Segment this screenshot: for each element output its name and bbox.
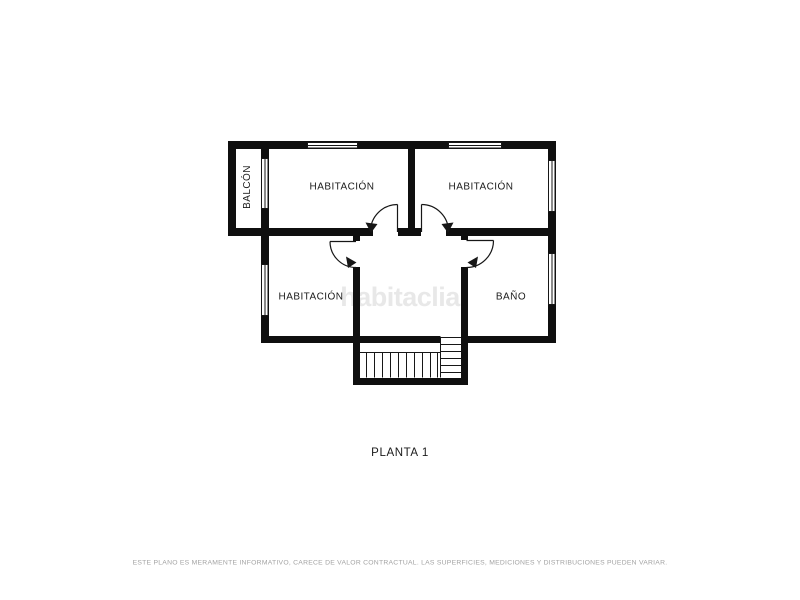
floor-plan-page: habitaclia <box>0 0 800 600</box>
floor-plan-drawing: habitaclia <box>0 0 800 600</box>
room-label-bedroom-mid-left: HABITACIÓN <box>279 290 344 303</box>
room-label-bedroom-top-left: HABITACIÓN <box>310 180 375 193</box>
room-label-balcony: BALCÓN <box>240 165 253 209</box>
window-bedroom-top-left <box>308 143 358 149</box>
wall-bathroom-bottom <box>461 336 556 343</box>
door-bathroom <box>467 241 494 269</box>
disclaimer-text: ESTE PLANO ES MERAMENTE INFORMATIVO, CAR… <box>133 560 668 567</box>
wall-middle-left-segment <box>228 228 373 236</box>
stair-treads <box>360 353 440 378</box>
door-bedroom-top-right <box>422 205 454 234</box>
door-bedroom-top-left <box>366 205 398 234</box>
wall-bottom-left <box>261 336 440 343</box>
room-label-bedroom-top-right: HABITACIÓN <box>449 180 514 193</box>
wall-hall-right-lower <box>461 267 468 385</box>
wall-hall-left-upper <box>353 228 360 241</box>
stair-landing-steps <box>441 337 462 378</box>
wall-hall-right-upper <box>461 228 468 240</box>
window-bathroom-side <box>549 254 556 305</box>
door-bedroom-mid-left <box>330 242 357 269</box>
wall-balcony-left <box>228 141 236 236</box>
floor-title: PLANTA 1 <box>371 447 429 459</box>
wall-middle-center-segment <box>398 228 421 236</box>
room-label-bathroom: BAÑO <box>496 290 526 303</box>
wall-hall-left-lower <box>353 267 360 385</box>
window-bedroom-mid-left-side <box>262 265 269 316</box>
wall-bedrooms-divider <box>408 141 415 236</box>
window-bedroom-top-right-side <box>549 161 556 212</box>
window-bedroom-top-right <box>449 143 502 149</box>
wall-top <box>228 141 556 149</box>
window-balcony-door <box>262 159 269 209</box>
walls <box>228 141 556 385</box>
wall-stairs-bottom <box>353 378 468 385</box>
